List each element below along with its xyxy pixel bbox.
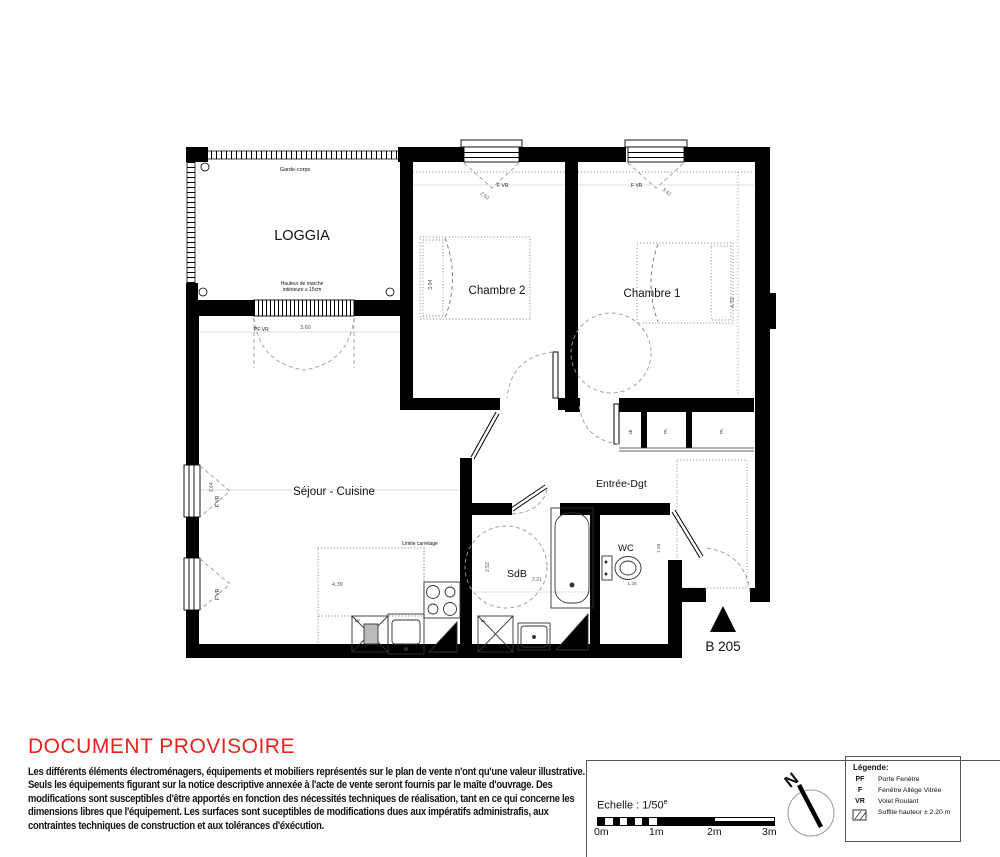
scale-tick-3m: 3m [762, 826, 777, 838]
door-leaf-chambre1 [614, 404, 619, 444]
disclaimer-line: Seuls les équipements figurant sur la no… [28, 779, 585, 792]
legend-row-pf: PF Porte Fenêtre [846, 776, 960, 787]
loggia-door-type: PF VR [254, 327, 269, 333]
scale-bar-segment-2 [657, 818, 716, 825]
turning-circle-chambre1 [571, 313, 651, 393]
window-type-chambre1: F VR [631, 183, 643, 189]
turning-circle-sdb [465, 526, 547, 608]
disclaimer-line: Les différents éléments électroménagers,… [28, 766, 585, 779]
room-label-entree: Entrée-Dgt [596, 478, 647, 490]
bed-chambre1 [637, 243, 733, 323]
threshold-wedge-sdb [556, 614, 588, 650]
walls [186, 147, 776, 658]
legend-label: Soffite hauteur ± 2.20 m [878, 809, 950, 816]
legend-abbr: PF [848, 776, 872, 783]
legend-label: Fenêtre Allège Vitrée [878, 787, 941, 794]
scale-label: Echelle : 1/50e [597, 799, 668, 812]
dimension-guide-lines [199, 185, 754, 592]
window-type-chambre2: F VR [497, 183, 509, 189]
compass: N [778, 764, 844, 840]
loggia-door-sill [254, 300, 354, 316]
disclaimer-line: modifications sont susceptibles d'être a… [28, 793, 585, 806]
legend-row-f: F Fenêtre Allège Vitrée [846, 787, 960, 798]
dim-chambre1: 4.72 [730, 297, 736, 308]
scale-tick-1m: 1m [649, 826, 664, 838]
window-sejour-upper [184, 465, 200, 517]
room-label-chambre1: Chambre 1 [624, 288, 681, 300]
dishwasher-tag: LV [355, 618, 360, 623]
dim-sdb-width: 2.21 [532, 577, 542, 583]
toilet [602, 556, 641, 580]
closet-fronts [619, 448, 754, 451]
floor-plan-drawing: LOGGIA Chambre 2 Chambre 1 Séjour - Cuis… [0, 0, 1000, 720]
bathtub [551, 508, 593, 608]
scale-tick-0m: 0m [594, 826, 609, 838]
room-label-sejour: Séjour - Cuisine [293, 486, 375, 498]
room-label-wc: WC [618, 543, 634, 554]
scale-tick-2m: 2m [707, 826, 722, 838]
closet-tag-pl2: PL [719, 428, 724, 434]
door-leaf-sdb [511, 485, 545, 508]
legend-abbr: VR [848, 798, 872, 805]
window-dim-chambre2: 2.52 [479, 191, 491, 202]
legend-label: Volet Roulant [878, 798, 918, 805]
window-type-sejour-1: F VR [215, 495, 221, 507]
washer-tag: LL [481, 618, 486, 623]
door-leaf-sejour [471, 412, 496, 457]
soffit-hatch-icon [852, 809, 868, 822]
scale-bar-segment-3 [715, 818, 774, 825]
window-type-sejour-2: F VR [215, 588, 221, 600]
closet-tag-ch: ch [628, 429, 633, 434]
door-leaves [471, 352, 703, 558]
window-dim-chambre1: 3.42 [661, 187, 673, 198]
room-label-sdb: SdB [507, 568, 527, 580]
disclaimer-line: dimensions libres que l'équipement. Les … [28, 806, 585, 819]
dim-sdb-depth: 2.52 [485, 562, 491, 572]
legend-abbr: F [848, 787, 872, 794]
titleblock-border-left [586, 760, 587, 857]
scale-bar-segment-1 [598, 818, 657, 825]
door-leaf-entrance [672, 512, 700, 558]
dim-kitchen: 4.39 [332, 582, 343, 588]
dim-wc-depth: 1.39 [656, 543, 662, 553]
stove [424, 582, 460, 618]
tile-limit-label: Limite carrelage [402, 541, 438, 547]
railing-label: Garde-corps [280, 167, 311, 173]
dim-wc-width: 1.38 [627, 581, 637, 587]
kitchen-fixtures [352, 582, 460, 654]
legend-row-vr: VR Volet Roulant [846, 798, 960, 809]
disclaimer-line: contraintes techniques de construction e… [28, 820, 585, 833]
door-leaf-chambre2 [553, 352, 558, 398]
legend-row-soffit: Soffite hauteur ± 2.20 m [846, 809, 960, 820]
legend-title: Légende: [853, 763, 889, 772]
step-note-line2: intérieure ≤ 15cm [283, 287, 322, 293]
unit-marker-triangle [710, 606, 736, 632]
bed-chambre2 [420, 237, 530, 319]
window-chambre2 [461, 140, 522, 162]
disclaimer-text: Les différents éléments électroménagers,… [28, 766, 585, 833]
room-label-chambre2: Chambre 2 [469, 285, 526, 297]
floor-plan-sheet: LOGGIA Chambre 2 Chambre 1 Séjour - Cuis… [0, 0, 1000, 857]
window-chambre1 [625, 140, 687, 162]
scale-bar [597, 817, 775, 826]
legend-box: Légende: PF Porte Fenêtre F Fenêtre Allè… [845, 756, 961, 842]
provisional-document-title: DOCUMENT PROVISOIRE [28, 735, 295, 759]
room-label-loggia: LOGGIA [274, 228, 330, 244]
compass-circle [788, 790, 834, 836]
closet-tag-pl1: PL [663, 428, 668, 434]
soffit-zone-entrance [677, 460, 747, 588]
unit-label: B 205 [705, 639, 740, 654]
dim-chambre2: 3.94 [428, 279, 434, 290]
loggia-door-dim: 3.60 [300, 325, 311, 331]
window-dim-sejour: 3.64 [209, 482, 215, 492]
legend-label: Porte Fenêtre [878, 776, 920, 783]
threshold-wedge-kitchen [429, 622, 457, 652]
window-sejour-lower [184, 558, 200, 610]
bathroom-fixtures [478, 508, 641, 652]
